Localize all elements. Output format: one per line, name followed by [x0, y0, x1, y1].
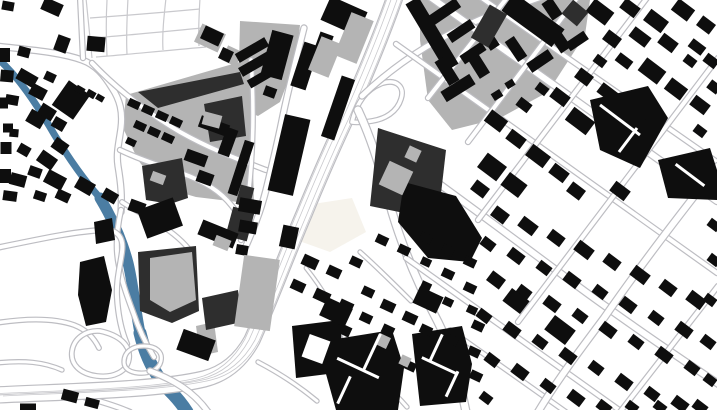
- building-complex: [142, 158, 188, 204]
- building: [235, 244, 249, 256]
- building: [20, 404, 36, 410]
- building: [0, 169, 11, 183]
- building: [2, 190, 17, 202]
- building: [1, 142, 12, 154]
- map-viewport[interactable]: [0, 0, 717, 410]
- city-map-canvas[interactable]: [0, 0, 717, 410]
- building: [0, 69, 14, 82]
- building-complex: [150, 252, 196, 312]
- building: [0, 48, 10, 62]
- building: [86, 36, 105, 53]
- building-complex: [94, 218, 115, 244]
- building: [0, 98, 8, 109]
- building: [9, 129, 19, 138]
